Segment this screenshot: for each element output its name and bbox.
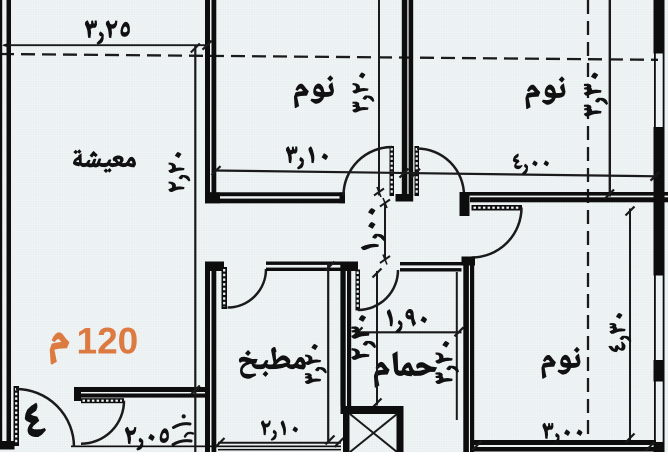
svg-text:120: 120 <box>77 321 139 362</box>
